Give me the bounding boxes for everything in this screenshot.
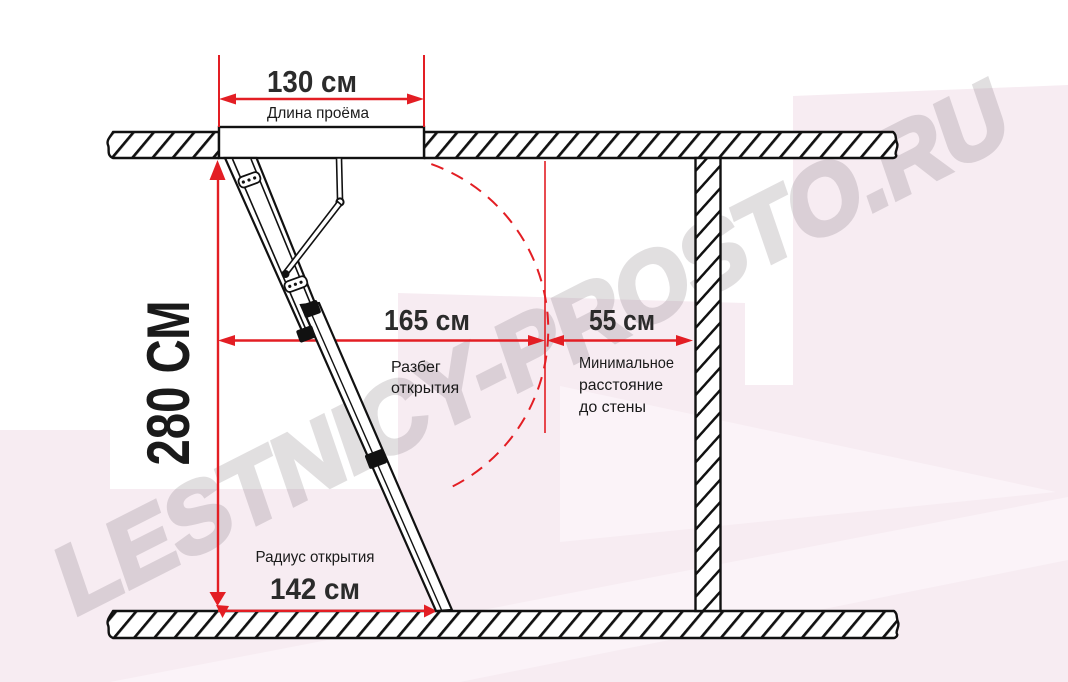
- svg-text:Длина проёма: Длина проёма: [267, 105, 369, 122]
- svg-text:Разбег: Разбег: [391, 359, 441, 376]
- svg-text:Минимальное: Минимальное: [579, 355, 674, 372]
- svg-text:55 см: 55 см: [589, 305, 655, 337]
- svg-text:165 см: 165 см: [384, 305, 470, 337]
- svg-text:Радиус открытия: Радиус открытия: [256, 549, 375, 566]
- svg-text:до стены: до стены: [579, 399, 646, 416]
- svg-text:расстояние: расстояние: [579, 377, 663, 394]
- svg-text:открытия: открытия: [391, 380, 459, 397]
- svg-text:130 см: 130 см: [267, 64, 357, 99]
- svg-text:142 см: 142 см: [270, 573, 360, 606]
- svg-text:280 СМ: 280 СМ: [135, 301, 202, 466]
